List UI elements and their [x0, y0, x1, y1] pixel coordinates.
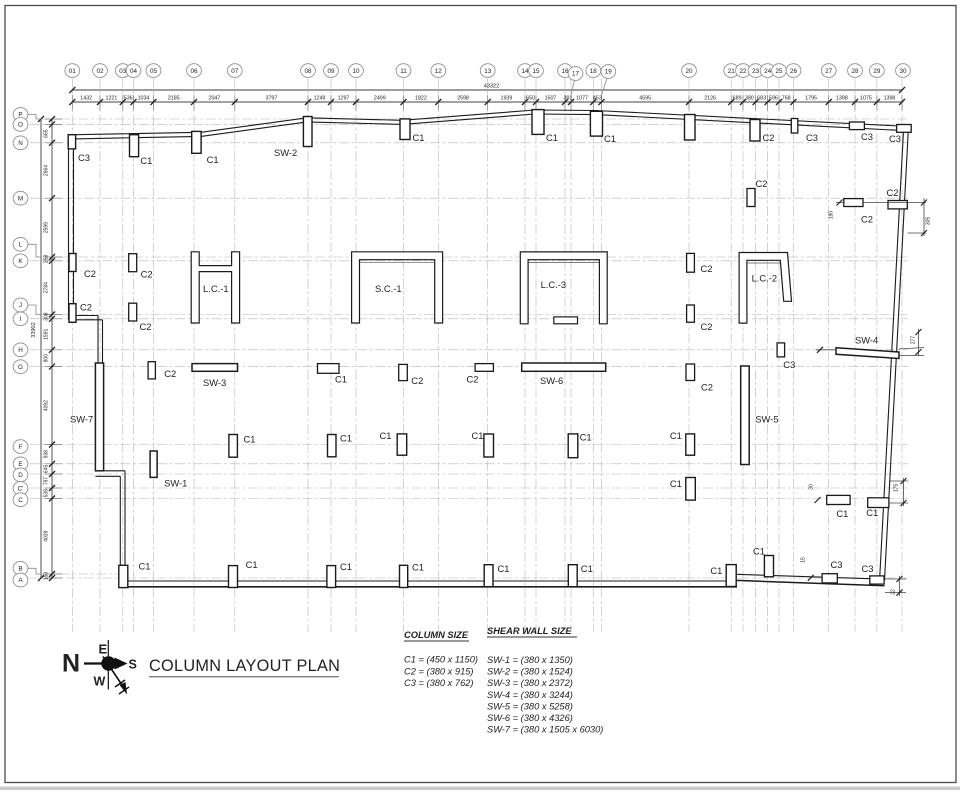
- svg-text:150: 150: [44, 572, 50, 581]
- svg-text:2047: 2047: [209, 96, 221, 102]
- svg-text:C: C: [18, 497, 23, 504]
- svg-text:23: 23: [752, 68, 760, 75]
- svg-text:1795: 1795: [805, 96, 817, 102]
- svg-text:17: 17: [572, 71, 580, 78]
- svg-text:13: 13: [484, 68, 492, 75]
- svg-text:E: E: [99, 642, 108, 657]
- svg-text:10: 10: [352, 68, 360, 75]
- svg-text:900: 900: [44, 354, 50, 363]
- svg-text:C3: C3: [783, 359, 795, 370]
- svg-text:258: 258: [44, 255, 50, 264]
- svg-text:16: 16: [561, 68, 569, 75]
- svg-text:SW-2 = (380 x 1524): SW-2 = (380 x 1524): [487, 667, 573, 677]
- svg-text:C1: C1: [340, 433, 352, 444]
- svg-text:C1: C1: [710, 565, 722, 576]
- svg-text:L: L: [19, 242, 23, 249]
- svg-text:L.C.-1: L.C.-1: [203, 283, 229, 294]
- svg-text:C2: C2: [763, 132, 775, 143]
- svg-text:C2: C2: [861, 214, 873, 225]
- svg-text:C2: C2: [164, 368, 176, 379]
- svg-text:SW-3 = (380 x 2372): SW-3 = (380 x 2372): [487, 678, 573, 688]
- svg-text:1297: 1297: [338, 96, 350, 102]
- svg-text:SW-2: SW-2: [274, 147, 297, 158]
- svg-text:1591: 1591: [44, 329, 50, 340]
- svg-text:C1: C1: [380, 430, 392, 441]
- svg-text:C3: C3: [831, 559, 843, 570]
- svg-text:1432: 1432: [80, 96, 92, 102]
- svg-text:1398: 1398: [884, 96, 896, 102]
- svg-text:SW-1 = (380 x 1350): SW-1 = (380 x 1350): [487, 655, 573, 665]
- svg-text:SW-3: SW-3: [203, 377, 226, 388]
- svg-text:SW-6: SW-6: [540, 375, 563, 386]
- svg-text:24: 24: [764, 68, 772, 75]
- svg-text:C3: C3: [78, 152, 90, 163]
- svg-text:30: 30: [809, 484, 815, 490]
- svg-text:O: O: [18, 122, 23, 129]
- svg-text:S: S: [129, 658, 137, 672]
- svg-text:277: 277: [911, 336, 917, 345]
- svg-text:L.C.-2: L.C.-2: [752, 273, 778, 284]
- svg-text:28: 28: [851, 68, 859, 75]
- svg-text:SW-7: SW-7: [70, 414, 93, 425]
- svg-text:01: 01: [69, 68, 77, 75]
- svg-text:1822: 1822: [415, 96, 427, 102]
- svg-text:C1: C1: [139, 561, 151, 572]
- svg-text:C2: C2: [80, 302, 92, 313]
- svg-text:C': C': [18, 486, 24, 493]
- svg-text:2499: 2499: [374, 96, 386, 102]
- svg-text:536: 536: [124, 96, 133, 102]
- svg-text:C2: C2: [701, 382, 713, 393]
- svg-text:SW-4: SW-4: [855, 335, 878, 346]
- svg-text:W: W: [94, 675, 106, 689]
- svg-text:C1: C1: [836, 508, 848, 519]
- svg-text:03: 03: [119, 68, 127, 75]
- svg-text:1034: 1034: [138, 96, 150, 102]
- svg-text:SW-7 = (380 x 1505 x 6030): SW-7 = (380 x 1505 x 6030): [487, 725, 603, 735]
- svg-text:4595: 4595: [639, 96, 651, 102]
- svg-text:683: 683: [757, 96, 766, 102]
- svg-text:4092: 4092: [44, 400, 50, 411]
- svg-text:2126: 2126: [704, 96, 716, 102]
- svg-text:2185: 2185: [168, 96, 180, 102]
- svg-text:15: 15: [801, 557, 807, 563]
- svg-text:F: F: [19, 444, 23, 451]
- svg-text:09: 09: [327, 68, 335, 75]
- svg-text:650: 650: [526, 96, 535, 102]
- svg-text:COLUMN SIZE: COLUMN SIZE: [404, 630, 469, 640]
- svg-text:938: 938: [44, 450, 50, 459]
- svg-text:308: 308: [44, 312, 50, 321]
- svg-text:C1: C1: [753, 546, 765, 557]
- svg-text:C1: C1: [244, 434, 256, 445]
- svg-text:1249: 1249: [314, 96, 326, 102]
- svg-text:C3 = (380 x 762): C3 = (380 x 762): [404, 678, 474, 688]
- svg-text:43322: 43322: [484, 84, 500, 90]
- svg-text:1221: 1221: [106, 96, 118, 102]
- svg-text:C2: C2: [756, 178, 768, 189]
- svg-text:20: 20: [685, 68, 693, 75]
- svg-text:645: 645: [44, 465, 50, 474]
- svg-text:COLUMN LAYOUT PLAN: COLUMN LAYOUT PLAN: [149, 657, 340, 675]
- svg-text:I: I: [20, 316, 22, 323]
- svg-text:B: B: [18, 566, 22, 573]
- svg-text:SW-5 = (380 x 5258): SW-5 = (380 x 5258): [487, 701, 573, 711]
- svg-text:C1: C1: [866, 507, 878, 518]
- svg-text:27: 27: [825, 68, 833, 75]
- svg-text:2784: 2784: [44, 282, 50, 293]
- svg-text:C1: C1: [580, 432, 592, 443]
- svg-text:380: 380: [745, 96, 754, 102]
- svg-text:596: 596: [769, 96, 778, 102]
- svg-text:30: 30: [899, 68, 907, 75]
- svg-text:SW-4 = (380 x 3244): SW-4 = (380 x 3244): [487, 690, 573, 700]
- svg-text:C1: C1: [670, 430, 682, 441]
- svg-text:22: 22: [739, 68, 747, 75]
- svg-text:D: D: [18, 472, 23, 479]
- svg-text:C2: C2: [701, 263, 713, 274]
- svg-text:C1: C1: [498, 563, 510, 574]
- svg-text:12: 12: [435, 68, 443, 75]
- svg-text:11: 11: [400, 68, 407, 75]
- svg-text:18: 18: [590, 68, 598, 75]
- svg-text:15: 15: [532, 68, 540, 75]
- svg-text:1398: 1398: [836, 96, 848, 102]
- svg-text:C1: C1: [340, 561, 352, 572]
- svg-text:C1: C1: [207, 154, 219, 165]
- svg-text:N: N: [18, 140, 23, 147]
- svg-text:1077: 1077: [576, 96, 588, 102]
- svg-text:C1: C1: [472, 430, 484, 441]
- svg-text:22: 22: [891, 589, 897, 595]
- svg-text:C1: C1: [140, 155, 152, 166]
- svg-text:3797: 3797: [266, 96, 278, 102]
- svg-text:1939: 1939: [501, 96, 513, 102]
- svg-text:C1: C1: [412, 562, 424, 573]
- svg-text:C1: C1: [335, 374, 347, 385]
- svg-text:26: 26: [790, 68, 798, 75]
- svg-text:C1: C1: [670, 478, 682, 489]
- svg-text:C2: C2: [140, 321, 152, 332]
- svg-text:N: N: [62, 650, 80, 678]
- svg-text:SW-6 = (380 x 4326): SW-6 = (380 x 4326): [487, 713, 573, 723]
- svg-text:P: P: [18, 112, 22, 119]
- svg-text:29: 29: [873, 68, 881, 75]
- svg-text:1507: 1507: [545, 96, 557, 102]
- svg-text:190: 190: [829, 211, 835, 220]
- svg-text:C2 = (380 x 915): C2 = (380 x 915): [404, 667, 474, 677]
- svg-text:C2: C2: [467, 374, 479, 385]
- svg-text:M: M: [18, 195, 23, 202]
- svg-text:SW-5: SW-5: [755, 414, 778, 425]
- svg-text:305: 305: [926, 217, 932, 226]
- svg-text:19: 19: [605, 69, 613, 76]
- svg-text:2598: 2598: [457, 96, 469, 102]
- svg-text:S.C.-1: S.C.-1: [375, 283, 402, 294]
- svg-text:768: 768: [782, 96, 791, 102]
- svg-text:C2: C2: [887, 187, 899, 198]
- svg-text:SHEAR WALL SIZE: SHEAR WALL SIZE: [487, 626, 572, 636]
- svg-text:C1 = (450 x 1150): C1 = (450 x 1150): [404, 655, 478, 665]
- svg-text:05: 05: [150, 68, 158, 75]
- svg-text:C3: C3: [861, 131, 873, 142]
- svg-text:07: 07: [231, 68, 239, 75]
- svg-text:14: 14: [521, 68, 529, 75]
- svg-text:453: 453: [593, 96, 602, 102]
- svg-text:25: 25: [775, 68, 783, 75]
- svg-text:689: 689: [733, 96, 742, 102]
- svg-text:2599: 2599: [44, 222, 50, 233]
- svg-text:C2: C2: [701, 321, 713, 332]
- svg-text:C1: C1: [246, 559, 258, 570]
- svg-text:1075: 1075: [860, 96, 872, 102]
- svg-text:G: G: [18, 364, 23, 371]
- svg-text:391: 391: [564, 96, 573, 102]
- svg-text:06: 06: [190, 68, 198, 75]
- svg-text:4039: 4039: [44, 530, 50, 541]
- svg-text:E: E: [18, 461, 22, 468]
- svg-text:04: 04: [130, 68, 138, 75]
- svg-text:C1: C1: [604, 133, 616, 144]
- svg-text:665: 665: [44, 129, 50, 138]
- svg-text:538: 538: [44, 489, 50, 498]
- svg-text:J: J: [19, 302, 22, 309]
- svg-text:02: 02: [96, 68, 104, 75]
- svg-text:175: 175: [894, 484, 900, 493]
- svg-text:C1: C1: [413, 132, 425, 143]
- svg-text:08: 08: [304, 68, 312, 75]
- svg-text:C2: C2: [411, 375, 423, 386]
- svg-text:C2: C2: [84, 268, 96, 279]
- svg-text:33902: 33902: [31, 322, 37, 338]
- svg-text:797: 797: [44, 477, 50, 486]
- svg-text:C1: C1: [546, 132, 558, 143]
- svg-text:L.C.-3: L.C.-3: [541, 279, 567, 290]
- svg-text:H: H: [18, 347, 23, 354]
- svg-text:C1: C1: [581, 563, 593, 574]
- svg-text:21: 21: [728, 68, 736, 75]
- svg-text:C3: C3: [889, 133, 901, 144]
- svg-text:C3: C3: [806, 132, 818, 143]
- svg-text:C3: C3: [862, 563, 874, 574]
- svg-text:SW-1: SW-1: [164, 478, 187, 489]
- svg-text:C2: C2: [141, 269, 153, 280]
- svg-text:2864: 2864: [44, 165, 50, 176]
